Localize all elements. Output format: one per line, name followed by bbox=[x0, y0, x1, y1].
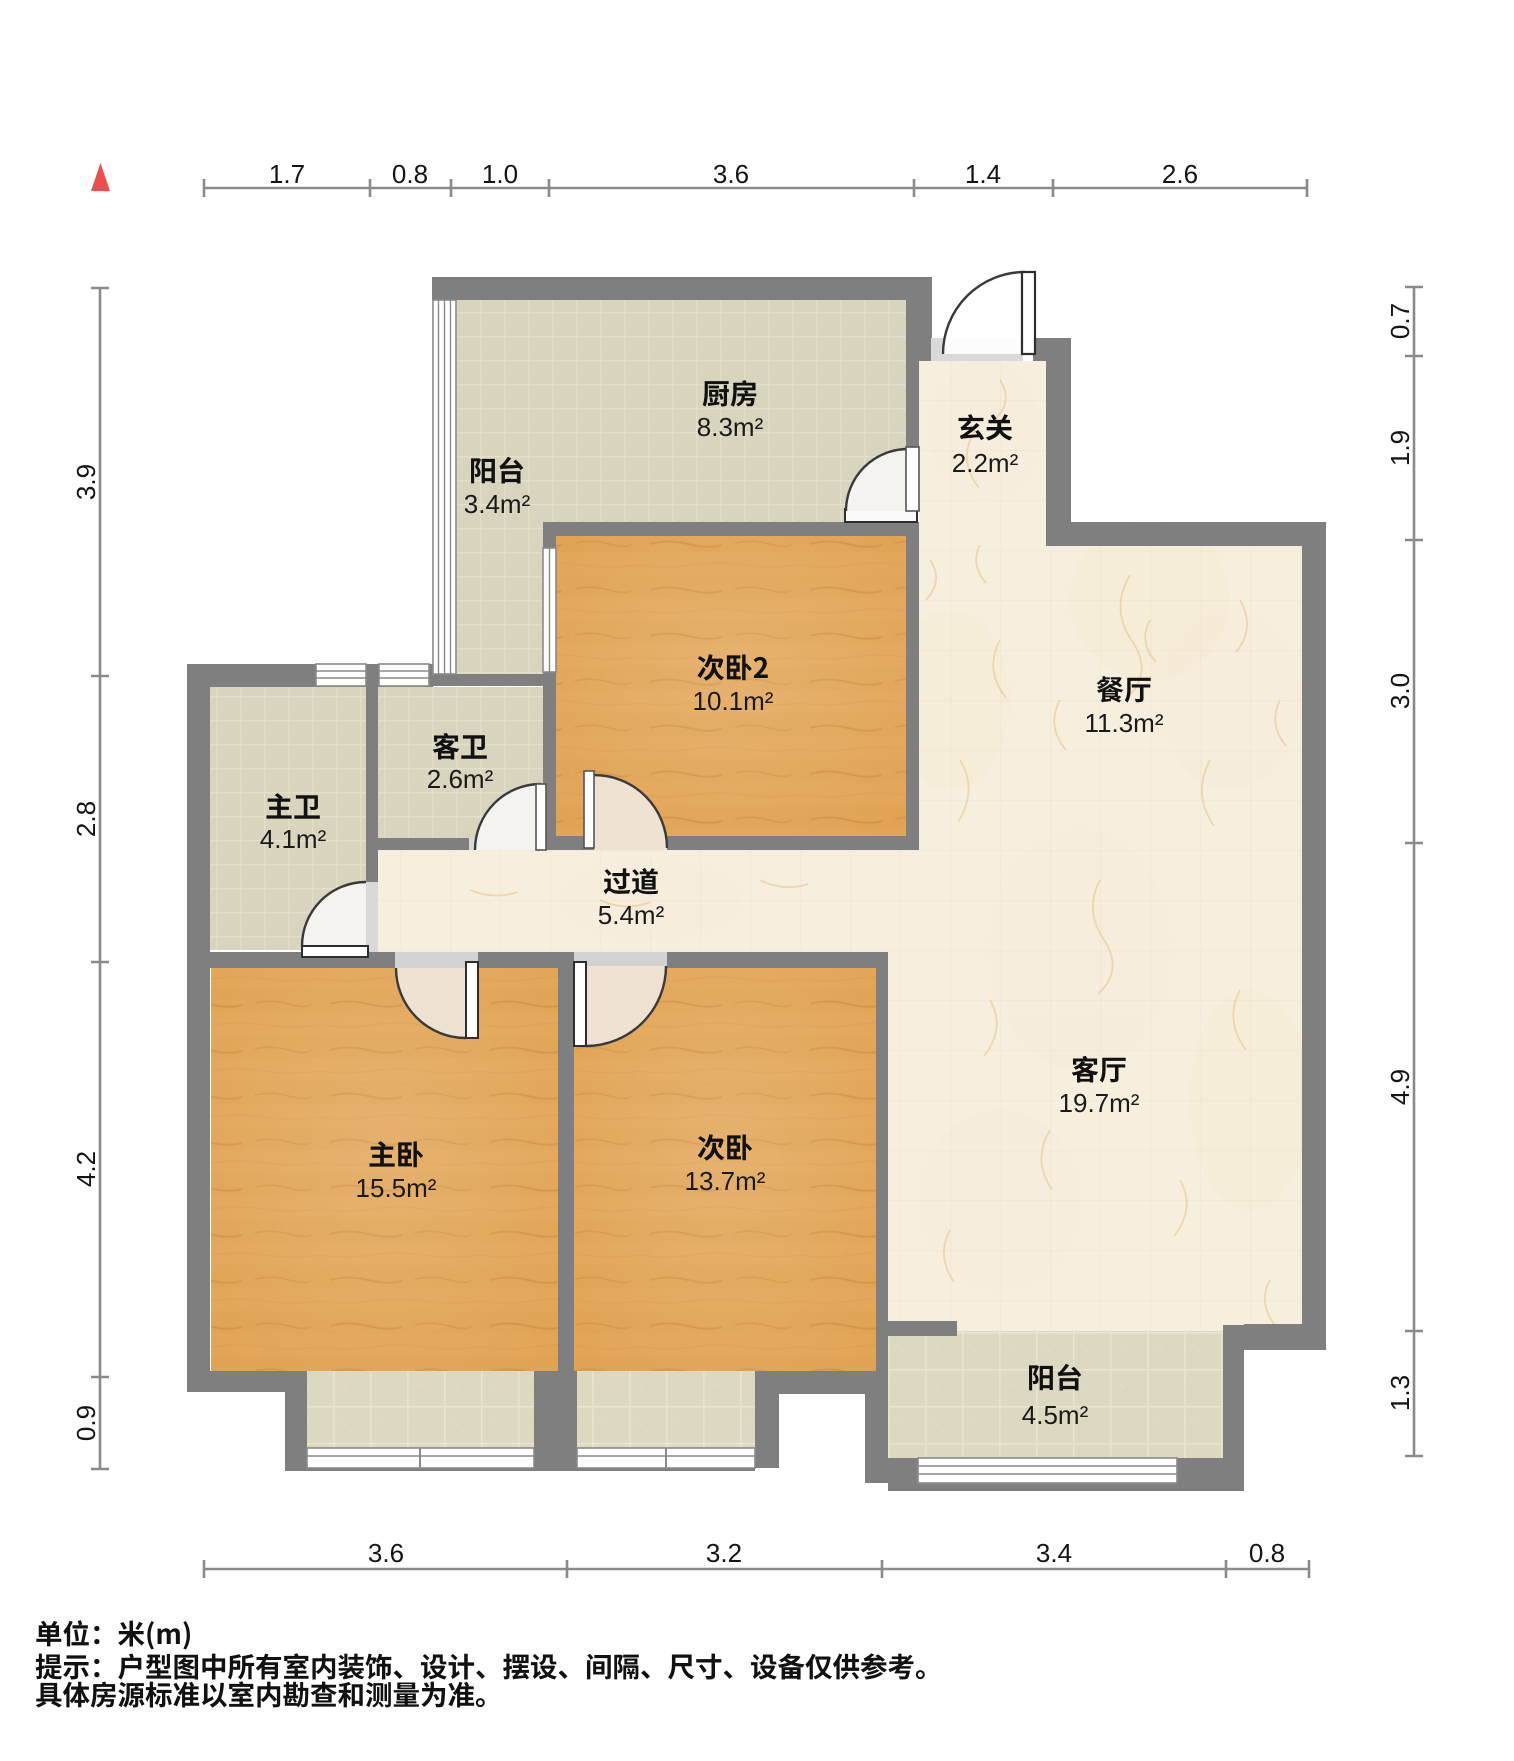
svg-text:1.0: 1.0 bbox=[482, 159, 518, 189]
svg-text:0.9: 0.9 bbox=[71, 1405, 101, 1441]
svg-text:1.7: 1.7 bbox=[269, 159, 305, 189]
svg-text:4.1m²: 4.1m² bbox=[260, 824, 327, 854]
svg-text:4.5m²: 4.5m² bbox=[1022, 1400, 1089, 1430]
svg-text:2.8: 2.8 bbox=[71, 801, 101, 837]
svg-text:8.3m²: 8.3m² bbox=[697, 412, 764, 442]
svg-text:0.7: 0.7 bbox=[1385, 303, 1415, 339]
svg-text:4.9: 4.9 bbox=[1385, 1069, 1415, 1105]
svg-text:13.7m²: 13.7m² bbox=[685, 1166, 766, 1196]
svg-text:10.1m²: 10.1m² bbox=[693, 686, 774, 716]
svg-text:1.3: 1.3 bbox=[1385, 1375, 1415, 1411]
svg-text:15.5m²: 15.5m² bbox=[356, 1173, 437, 1203]
svg-text:19.7m²: 19.7m² bbox=[1059, 1088, 1140, 1118]
svg-text:3.4m²: 3.4m² bbox=[464, 489, 531, 519]
svg-text:3.4: 3.4 bbox=[1036, 1538, 1072, 1568]
svg-text:3.6: 3.6 bbox=[368, 1538, 404, 1568]
svg-text:5.4m²: 5.4m² bbox=[598, 900, 665, 930]
svg-text:3.0: 3.0 bbox=[1385, 673, 1415, 709]
svg-text:1.4: 1.4 bbox=[965, 159, 1001, 189]
svg-text:11.3m²: 11.3m² bbox=[1085, 708, 1164, 738]
svg-text:2.2m²: 2.2m² bbox=[952, 448, 1019, 478]
svg-text:2.6m²: 2.6m² bbox=[427, 764, 494, 794]
svg-text:3.9: 3.9 bbox=[71, 464, 101, 500]
svg-text:3.6: 3.6 bbox=[713, 159, 749, 189]
svg-text:2.6: 2.6 bbox=[1162, 159, 1198, 189]
svg-text:3.2: 3.2 bbox=[706, 1538, 742, 1568]
svg-text:0.8: 0.8 bbox=[392, 159, 428, 189]
svg-text:4.2: 4.2 bbox=[71, 1151, 101, 1187]
svg-text:0.8: 0.8 bbox=[1249, 1538, 1285, 1568]
svg-text:1.9: 1.9 bbox=[1385, 430, 1415, 466]
